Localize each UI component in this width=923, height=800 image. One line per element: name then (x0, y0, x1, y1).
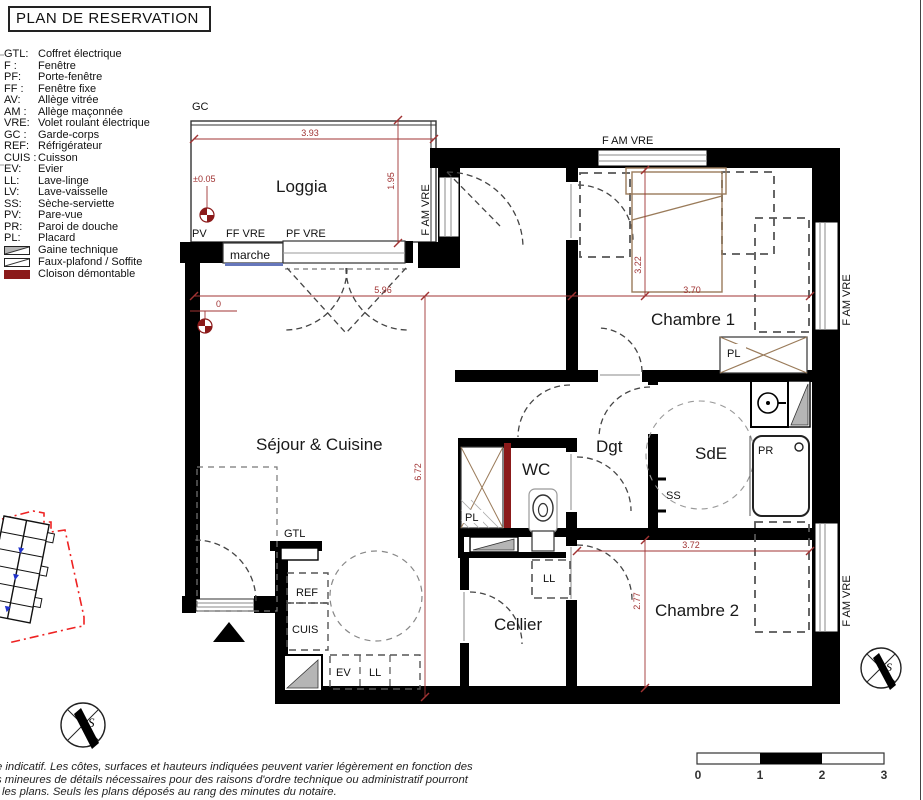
dim-3-22: 3.22 (633, 256, 643, 274)
toilet (529, 489, 557, 551)
cloison-demontable (504, 443, 511, 528)
entrance-arrow-icon (213, 622, 245, 642)
dim-3-72: 3.72 (682, 540, 700, 550)
dim-6-72: 6.72 (413, 463, 423, 481)
label-ev: EV (336, 667, 351, 679)
marche-step-line (225, 263, 283, 266)
disclaimer-line-3: les plans. Seuls les plans déposés au ra… (2, 786, 337, 798)
label-ss: SS (666, 490, 681, 502)
minimap-building (0, 515, 56, 625)
room-label-sejour: Séjour & Cuisine (256, 435, 383, 454)
label-pv: PV (192, 228, 207, 240)
room-label-chambre1: Chambre 1 (651, 310, 735, 329)
label-f-am-vre-top: F AM VRE (602, 135, 653, 147)
dim-3-93: 3.93 (301, 128, 319, 138)
label-f-am-vre-loggia: F AM VRE (420, 184, 432, 235)
room-label-dgt: Dgt (596, 437, 623, 456)
label-ll-sejour: LL (369, 667, 381, 679)
label-cuis: CUIS (292, 624, 318, 636)
dim-5-96: 5.96 (374, 285, 392, 295)
label-marche: marche (230, 248, 270, 262)
room-label-cellier: Cellier (494, 615, 543, 634)
scale-tick-1: 1 (757, 768, 764, 782)
scale-tick-0: 0 (695, 768, 702, 782)
scale-tick-3: 3 (881, 768, 888, 782)
dim-3-70: 3.70 (683, 285, 701, 295)
label-level-loggia: ±0.05 (193, 174, 215, 184)
label-pf-vre: PF VRE (286, 228, 326, 240)
label-ff-vre: FF VRE (226, 228, 265, 240)
soffite-box (281, 548, 318, 560)
room-label-loggia: Loggia (276, 177, 328, 196)
label-ref: REF (296, 587, 318, 599)
scale-bar: 0 1 2 3 (695, 753, 888, 782)
compass-needle (873, 653, 896, 690)
label-gc: GC (192, 101, 209, 113)
label-f-am-vre-right1: F AM VRE (841, 274, 853, 325)
label-gtl: GTL (284, 528, 305, 540)
compass-south-letter: S (88, 715, 95, 730)
room-label-sde: SdE (695, 444, 727, 463)
compass-bottom-left: S (61, 703, 105, 749)
disclaimer-line-2: s mineures de détails nécessaires pour d… (0, 774, 468, 786)
compass-bottom-right: S (861, 648, 901, 690)
floor-plan: 3.93 1.95 5.96 3.70 3.22 6.72 3.72 2.77 … (0, 0, 923, 800)
label-level-zero: 0 (216, 299, 221, 309)
site-minimap (0, 511, 84, 643)
compass-needle (74, 708, 99, 749)
label-pl-chambre1: PL (727, 348, 740, 360)
compass-south-letter: S (886, 660, 892, 674)
label-f-am-vre-right2: F AM VRE (841, 575, 853, 626)
dim-2-77: 2.77 (632, 592, 642, 610)
scale-tick-2: 2 (819, 768, 826, 782)
label-pl-wc: PL (465, 512, 478, 524)
room-label-chambre2: Chambre 2 (655, 601, 739, 620)
label-pr: PR (758, 445, 773, 457)
dim-1-95: 1.95 (386, 172, 396, 190)
label-ll-cellier: LL (543, 573, 555, 585)
room-label-wc: WC (522, 460, 550, 479)
washbasin (751, 381, 788, 427)
disclaimer-line-1: e indicatif. Les côtes, surfaces et haut… (0, 761, 473, 773)
